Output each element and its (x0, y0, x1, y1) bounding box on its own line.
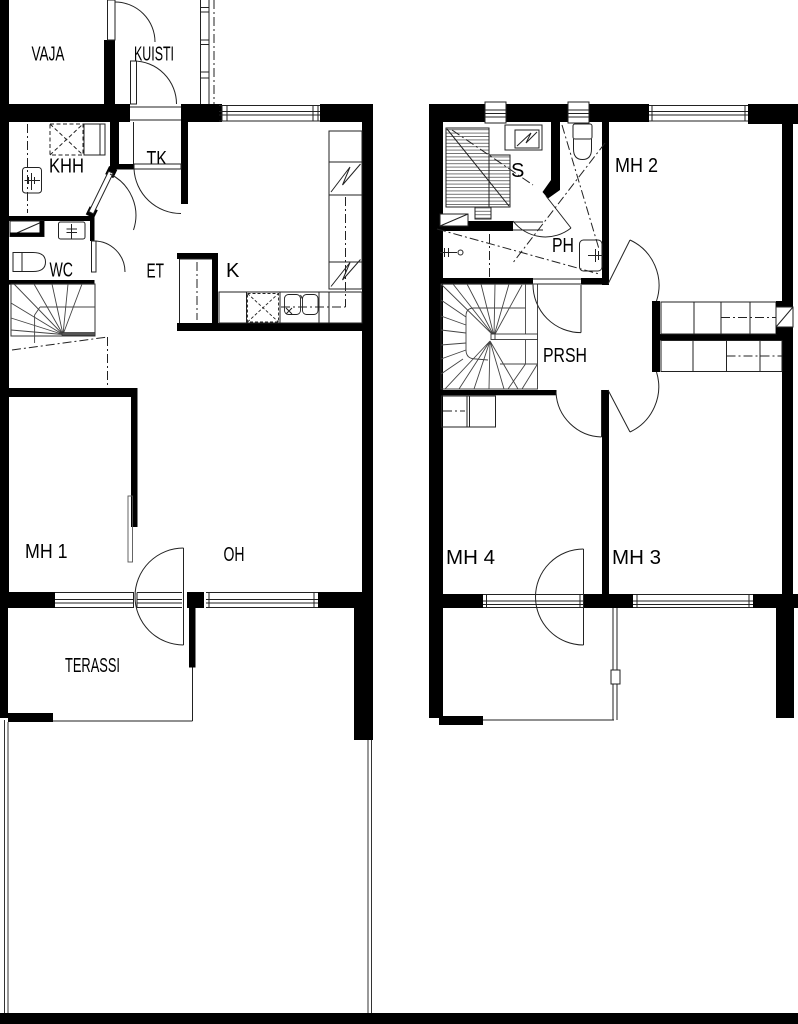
svg-text:MH 3: MH 3 (612, 547, 661, 569)
svg-text:PH: PH (552, 235, 574, 257)
svg-text:OH: OH (224, 544, 245, 566)
svg-text:KHH: KHH (49, 156, 84, 178)
svg-text:KUISTI: KUISTI (134, 44, 174, 66)
svg-text:K: K (226, 260, 240, 282)
svg-text:ET: ET (147, 261, 165, 283)
svg-text:MH 1: MH 1 (25, 541, 68, 563)
svg-text:WC: WC (50, 260, 74, 282)
svg-text:MH 4: MH 4 (446, 547, 495, 569)
svg-text:TERASSI: TERASSI (65, 655, 120, 677)
svg-text:MH 2: MH 2 (615, 155, 658, 177)
svg-text:PRSH: PRSH (543, 345, 587, 367)
svg-text:VAJA: VAJA (32, 44, 65, 66)
